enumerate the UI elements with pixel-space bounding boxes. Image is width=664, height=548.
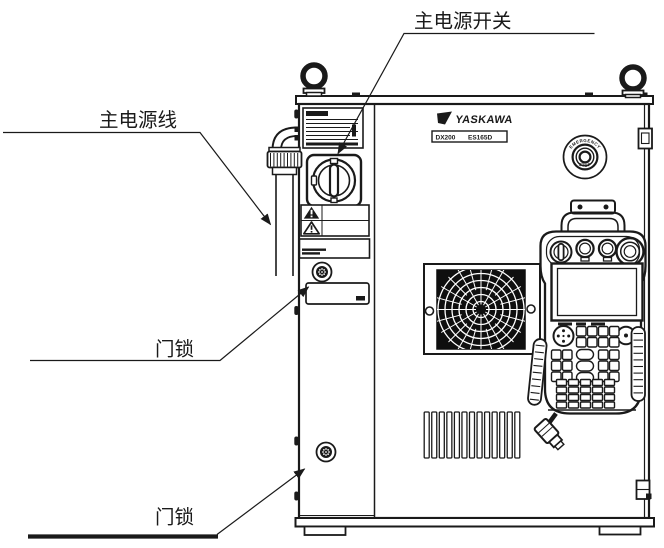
callout-label: 门锁 [155,507,194,529]
lifting-eyebolt-left [303,65,325,96]
leader-line [3,133,271,225]
door-stop-bump-right [585,93,593,97]
cabinet-top-band [296,93,653,105]
pendant-label-strip [558,323,605,326]
foot-right [600,527,641,535]
cooling-fan [424,264,540,356]
pendant-grip-right [632,327,646,401]
brand-text: YASKAWA [455,114,514,126]
callout-label: 主电源开关 [414,11,512,33]
callout-label: 主电源线 [99,110,177,132]
door-lock-plate [306,283,369,304]
lifting-eyebolt-right [622,67,644,98]
diagram-canvas: YASKAWA DX200 ES165D EMERGENCY STOP [0,0,664,548]
door-stop-bump-left [352,93,360,97]
model-series-text: DX200 [436,134,456,141]
model-robot-text: ES165D [468,134,493,141]
warning-labels [301,205,369,236]
main-power-cable [268,127,302,277]
door-lock-lower [317,443,336,462]
switch-handle [330,165,338,197]
pendant-screen [552,264,643,321]
controller-diagram-figure: YASKAWA DX200 ES165D EMERGENCY STOP [0,0,664,548]
main-power-switch [307,155,361,206]
door-lock-upper [313,263,332,282]
leader-line [217,469,305,535]
fan-screw-right [527,305,535,313]
cable-gland [268,152,302,175]
callout-door-lock-lower: 门锁 [28,469,305,537]
controller-cabinet: YASKAWA DX200 ES165D EMERGENCY STOP [268,65,655,535]
fan-screw-left [426,307,434,315]
foot-left [305,527,346,536]
callout-door-lock-upper: 门锁 [30,287,309,361]
info-label [300,239,370,258]
cabinet-base [296,518,655,527]
side-latch-upper [639,129,653,149]
callout-main-power-cable: 主电源线 [3,110,271,225]
rating-nameplate [303,108,363,148]
model-label: DX200 ES165D [432,131,507,142]
side-latch-lower [637,481,652,500]
callout-label: 门锁 [155,339,194,361]
